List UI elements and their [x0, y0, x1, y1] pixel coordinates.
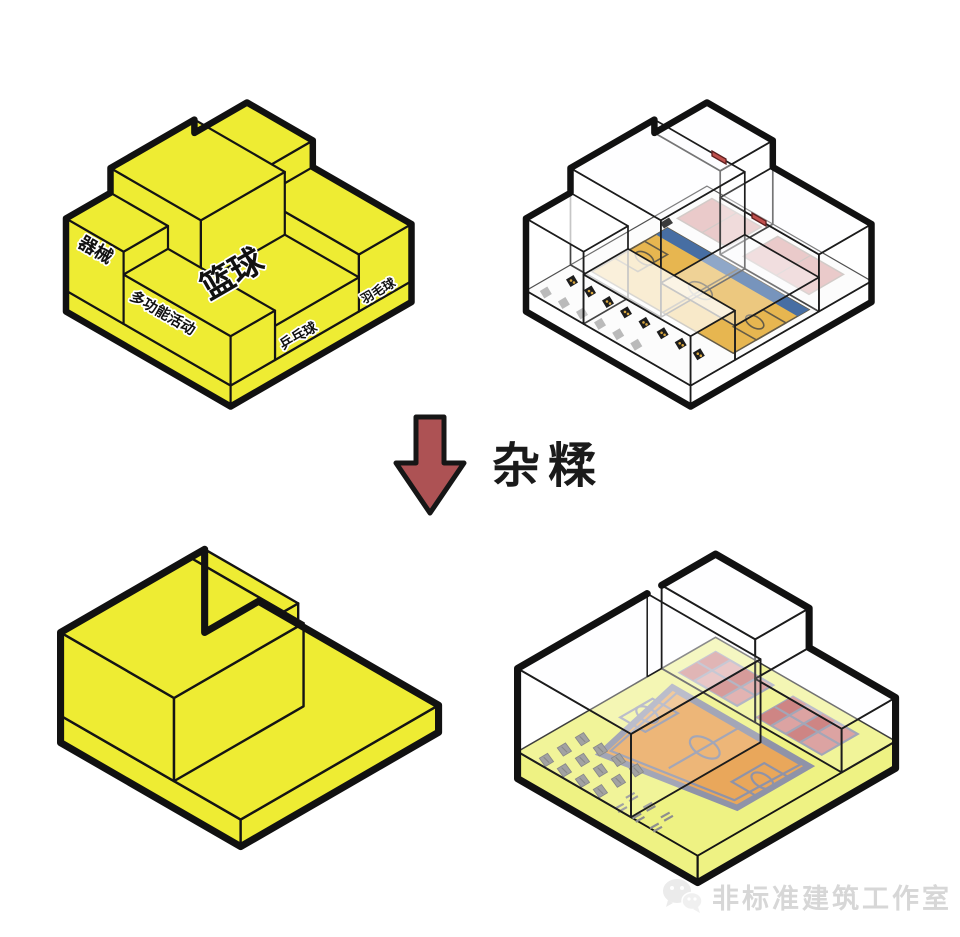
watermark: 非标准建筑工作室 [660, 876, 952, 916]
merged-massing-axon [45, 462, 505, 869]
merged-interior-axon [502, 498, 960, 905]
interior-axon [512, 55, 932, 427]
wechat-logo-icon [660, 876, 706, 916]
operation-label: 杂糅 [492, 426, 604, 496]
studio-name: 非标准建筑工作室 [712, 877, 952, 916]
labeled-massing-axon: 器械 多功能活动 乒乓球 篮球 羽毛球 [52, 55, 472, 427]
yellow-massing-faces [61, 549, 439, 846]
concept-diagram: 器械 多功能活动 乒乓球 篮球 羽毛球 [0, 0, 960, 937]
